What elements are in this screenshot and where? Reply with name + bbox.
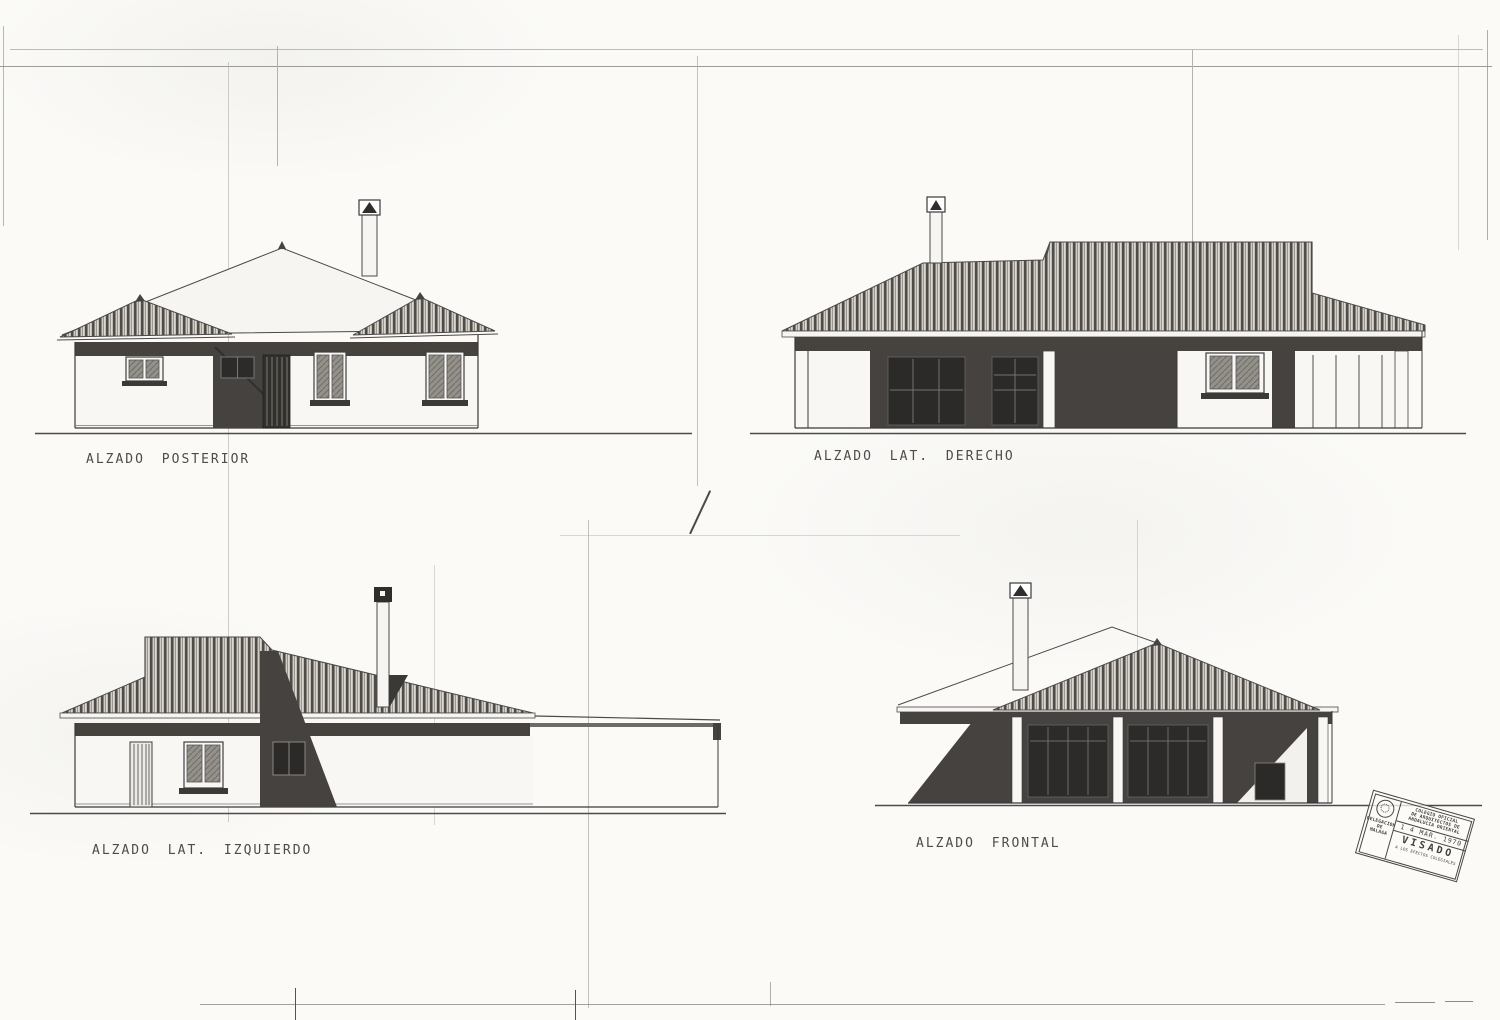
elevation-lat-derecho-figure: [750, 185, 1470, 485]
fold-crease: [697, 56, 698, 486]
label-alzado-lat-derecho: ALZADO LAT. DERECHO: [814, 449, 1015, 464]
pen-mark: [689, 490, 711, 534]
right-border-line: [1487, 30, 1488, 240]
elevation-frontal-drawing: [870, 555, 1490, 835]
bottom-fold-tick: [770, 982, 771, 1006]
elevation-posterior-drawing: [35, 185, 695, 485]
top-border-line-1: [10, 49, 1483, 50]
elevation-lat-izquierdo-drawing: [30, 555, 730, 835]
left-border-line: [3, 26, 4, 226]
bottom-border-dash: [1445, 1001, 1473, 1002]
fold-crease: [277, 46, 278, 166]
label-alzado-posterior: ALZADO POSTERIOR: [86, 452, 250, 467]
label-alzado-frontal: ALZADO FRONTAL: [916, 836, 1061, 851]
elevation-lat-izquierdo-figure: [30, 555, 730, 835]
bottom-border-line: [200, 1004, 1385, 1005]
elevation-posterior-figure: [35, 185, 695, 485]
elevation-frontal-figure: [870, 555, 1490, 835]
bottom-fold-tick: [575, 990, 576, 1020]
elevation-lat-derecho-drawing: [750, 185, 1470, 485]
stamp-seal-icon: [1374, 797, 1396, 819]
bottom-fold-tick: [295, 988, 296, 1020]
scanned-elevation-sheet: ALZADO POSTERIOR: [0, 0, 1500, 1020]
fold-crease: [560, 535, 960, 536]
bottom-border-dash: [1395, 1002, 1435, 1003]
label-alzado-lat-izquierdo: ALZADO LAT. IZQUIERDO: [92, 843, 312, 858]
top-border-line-2: [0, 66, 1492, 67]
